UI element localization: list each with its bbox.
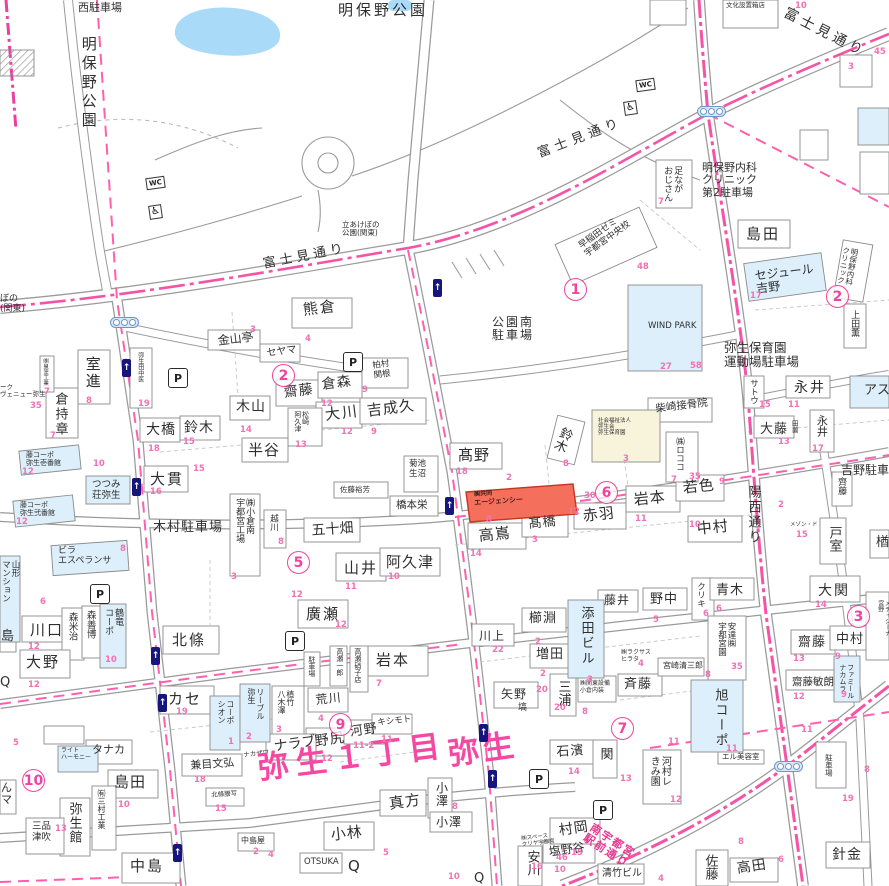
map-label: 宮崎清三郎 (663, 662, 703, 671)
map-label: 楢 (876, 536, 889, 551)
map-label: 中島屋 (241, 837, 265, 846)
map-label: 陽西通り (745, 485, 760, 545)
map-label: Q (0, 676, 10, 691)
lot-number: 58 (690, 362, 702, 372)
map-label: 大関 (818, 584, 850, 600)
lot-number: 18 (456, 468, 468, 478)
lot-number: 4 (658, 875, 664, 885)
lot-number: 3 (532, 536, 538, 546)
lot-number: 10 (448, 873, 460, 883)
lot-number: 14 (470, 550, 482, 560)
map-label: 佐藤 (702, 854, 717, 880)
map-label: 高瀬硝子店 (353, 648, 361, 683)
parking-icon: P (529, 769, 549, 789)
lot-number: 10 (689, 521, 701, 531)
lot-number: 35 (30, 402, 42, 412)
bus-stop-icon: ↑ (158, 694, 167, 712)
lot-number: 8 (864, 766, 870, 776)
lot-number: 4 (268, 851, 274, 861)
lot-number: 2 (540, 670, 546, 680)
map-label: 富士見通り (262, 242, 348, 273)
map-label: 南宇都宮 駅前通り (581, 822, 638, 871)
map-label: ん マ (1, 782, 12, 807)
map-label: 岩本 (376, 652, 410, 669)
map-label: 齊藤 (836, 477, 846, 495)
map-label: 河村レ きみ園 (648, 756, 670, 786)
map-label: 添田ビル (578, 606, 593, 666)
map-label: 橋本栄 (396, 500, 428, 512)
lot-number: 15 (215, 805, 227, 815)
map-label: 上田薫 (849, 310, 859, 337)
lot-number: 48 (637, 263, 649, 273)
lot-number: 16 (531, 863, 543, 873)
lot-number: 46 (556, 854, 568, 864)
lot-number: 6 (778, 856, 784, 866)
lot-number: 8 (738, 838, 744, 848)
lot-number: 8 (563, 460, 569, 470)
bus-stop-icon: ↑ (433, 279, 442, 297)
lot-number: 13 (55, 825, 67, 835)
toilet-icon: WC (635, 78, 655, 93)
lot-number: 9 (841, 691, 847, 701)
lot-number: 4 (638, 660, 644, 670)
lot-number: 11 (788, 401, 800, 411)
lot-number: 5 (653, 616, 659, 626)
map-label: 島田 (114, 774, 146, 791)
lot-number: 10 (388, 573, 400, 583)
map-label: 明保野公園 (338, 2, 428, 19)
map-label: 荒川 (315, 691, 342, 707)
map-label: 島田 (746, 226, 780, 243)
lot-number: 7 (376, 680, 382, 690)
lot-number: 22 (492, 646, 504, 656)
map-label: 齋藤 (798, 636, 826, 651)
lot-number: 2 (506, 474, 512, 484)
traffic-signal-icon (110, 317, 139, 328)
lot-number: 6 (703, 610, 709, 620)
lot-number: 9 (362, 386, 368, 396)
map-label: ライト ハーモニー (61, 748, 91, 761)
lot-number: 15 (759, 401, 771, 411)
map-label: 明保野公園 (80, 36, 97, 131)
lot-number: 10 (105, 656, 117, 666)
map-label: 関 (597, 747, 612, 760)
map-label: 足なが おじさん (662, 166, 682, 202)
parking-icon: P (285, 631, 305, 651)
map-label: 柏村 関根 (372, 360, 391, 381)
map-label: ㈱小倉南 宇都宮工場 (234, 498, 254, 543)
lot-number: 12 (568, 508, 580, 518)
lot-number: 15 (193, 465, 205, 475)
lot-number: 5 (13, 739, 19, 749)
map-label: 室進 (84, 356, 101, 390)
lot-number: 12 (793, 693, 805, 703)
lot-number: 11-2 (353, 742, 374, 752)
lot-number: 12 (22, 468, 34, 478)
lot-number: 10 (554, 866, 566, 876)
lot-number: 12 (341, 428, 353, 438)
map-label: 菊池 生沼 (409, 460, 426, 479)
map-label: 山形 マンション (0, 560, 19, 603)
lot-number: 11 (635, 515, 647, 525)
lot-number: 45 (874, 48, 886, 58)
lot-number: 7 (44, 388, 50, 398)
map-label: 鈴木 (184, 421, 214, 437)
map-label: 櫛淵 (529, 612, 557, 627)
lot-number: 17 (812, 445, 824, 455)
lot-number: 11 (668, 738, 680, 748)
map-label: 明保野内科 クリニック (835, 246, 858, 286)
map-label: 森米治 (66, 612, 77, 641)
map-label: 吉成久 (366, 397, 416, 420)
map-label: 五十畑 (311, 521, 354, 540)
lot-number: 7 (671, 476, 677, 486)
map-label: 田薗 (790, 420, 797, 433)
map-label: 弥生保育園 運動場駐車場 (724, 341, 799, 369)
lot-number: 4 (305, 335, 311, 345)
map-label: 青木 (716, 584, 744, 599)
map-label: 大野 (26, 654, 60, 671)
lot-number: 10 (118, 801, 130, 811)
wheelchair-icon: ♿ (148, 204, 163, 220)
map-label: 斉藤 (624, 678, 652, 693)
lot-number: 14 (568, 768, 580, 778)
circled-block-number: 2 (826, 285, 849, 308)
lot-number: 8 (86, 397, 92, 407)
lot-number: 14 (815, 601, 827, 611)
map-label: 藤コーポ 弥生壱番館 (26, 452, 61, 468)
map-label: 弥生館 (66, 802, 81, 844)
lot-number: 12 (335, 621, 347, 631)
lot-number: 17 (750, 292, 762, 302)
map-label: 高瀬一郎 (335, 648, 343, 676)
map-label: 熊倉 (302, 298, 338, 319)
map-label: 戸室 (826, 526, 841, 552)
map-label: 駐車場 (824, 754, 832, 777)
lot-number: 6 (716, 605, 722, 615)
map-label: 兼目文弘 (190, 757, 235, 772)
map-label: アス (864, 384, 889, 399)
lot-number: 8 (705, 671, 711, 681)
bus-stop-icon: ↑ (173, 844, 182, 862)
circled-block-number: 5 (287, 551, 310, 574)
map-label: 木山 (236, 400, 266, 416)
map-label: メゾン・ド (790, 522, 818, 528)
map-label: ㈱関東設備 小倉内装 (580, 681, 610, 694)
bus-stop-icon: ↑ (445, 497, 454, 515)
lot-number: 35 (731, 663, 743, 673)
lot-number: 20 (554, 704, 566, 714)
map-label: 半谷 (248, 442, 280, 459)
circled-block-number: 3 (847, 605, 870, 628)
lot-number: 9 (371, 428, 377, 438)
bus-stop-icon: ↑ (488, 770, 497, 788)
lot-number: 9 (719, 478, 725, 488)
map-label: 岩本 (633, 489, 667, 509)
lot-number: 7 (50, 432, 56, 442)
map-label: OTSUKA (304, 858, 339, 868)
map-label: タナカ (92, 744, 125, 756)
lot-number: 20 (536, 686, 548, 696)
map-label: ㈲三村工業 (96, 789, 105, 829)
circled-block-number: 9 (329, 713, 352, 736)
lot-number: 1 (228, 738, 234, 748)
lot-number: 2 (535, 638, 541, 648)
map-labels-layer: 西駐車場明保野公園明保野公園富士見通り文化設置箱店富士見通り富士見通り立あけぼの… (0, 0, 889, 886)
map-label: ビラ エスペランサ (58, 546, 111, 566)
lot-number: 18 (148, 445, 160, 455)
map-label: 植竹 八木澤 (276, 690, 294, 714)
lot-number: 8 (486, 516, 492, 526)
map-label: 北條謄写 (211, 790, 237, 799)
map-label: 藤コーポ 弥生弐番館 (20, 502, 55, 518)
map-label: セジュール 吉野 (754, 263, 816, 297)
map-label: 高田 (736, 858, 768, 878)
map-label: つつみ 荘弥生 (92, 480, 121, 501)
map-label: 木村駐車場 (153, 521, 223, 536)
map-label: 大貫 (150, 471, 184, 488)
lot-number: 13 (295, 441, 307, 451)
map-label: 野中 (650, 593, 678, 608)
map-label: 中島 (130, 858, 164, 875)
lot-number: 12 (321, 400, 333, 410)
lot-number: 2 (246, 733, 252, 743)
map-label: 佐藤裕芳 (340, 486, 370, 494)
map-label: 矢野 (501, 688, 527, 701)
lot-number: 12 (16, 518, 28, 528)
lot-number: 35 (689, 473, 701, 483)
lot-number: 6 (40, 598, 46, 608)
map-label: 公園南 駐車場 (492, 316, 534, 343)
map-label: 安達㈱ 宇都宮園 (716, 622, 735, 656)
circled-block-number: 1 (564, 278, 587, 301)
map-label: 永井 (794, 381, 826, 397)
lot-number: 13 (620, 775, 632, 785)
map-label: 金山亭 (217, 331, 254, 349)
map-label: コーポ シオン (216, 700, 234, 724)
map-label: 立あけぼの 公園(関東) (342, 221, 380, 238)
map-label: クリキ (695, 582, 705, 608)
map-label: 三品 津吹 (32, 822, 51, 843)
bus-stop-icon: ↑ (479, 724, 488, 742)
map-label: 藤井 (604, 594, 630, 607)
parking-icon: P (343, 352, 363, 372)
parking-icon: P (90, 584, 110, 604)
map-label: サトウ (748, 379, 758, 405)
lot-number: 3 (276, 726, 282, 736)
map-label: 大藤 (760, 423, 788, 438)
lot-number: 2 (778, 501, 784, 511)
traffic-signal-icon (774, 761, 803, 772)
map-label: 髙橋 (528, 515, 557, 532)
lot-number: 13 (793, 655, 805, 665)
map-label: カセ (168, 691, 202, 708)
map-label: 越川 (268, 514, 278, 531)
map-label: 高嶌 (478, 525, 512, 545)
map-label: 川上 (479, 630, 505, 643)
lot-number: 19 (176, 708, 188, 718)
map-label: セヤマ (266, 344, 297, 359)
map-label: 小 澤 (436, 782, 448, 809)
lot-number: 9 (835, 653, 841, 663)
toilet-icon: WC (145, 176, 165, 191)
map-label: ㈱ラクサス ヒラタ (621, 650, 651, 663)
map-label: 髙野 (458, 447, 490, 464)
lot-number: 12 (28, 681, 40, 691)
map-label: 川口 (30, 622, 64, 639)
lot-number: 2 (253, 848, 259, 858)
lot-number: 10 (795, 2, 807, 12)
map-label: メティシーナ 宮野 (876, 600, 889, 636)
lot-number: 13 (778, 438, 790, 448)
lot-number: 11 (381, 736, 393, 746)
lot-number: 12 (670, 796, 682, 806)
lot-number: 11 (726, 745, 738, 755)
map-label: 山井 (344, 560, 378, 577)
map-label: 中村 (836, 633, 864, 648)
map-label: 鈴木 (549, 424, 573, 454)
lot-number: 12 (321, 755, 333, 765)
lot-number: 12 (28, 643, 40, 653)
lot-number: 3 (848, 63, 854, 73)
map-label: WIND PARK (648, 322, 696, 332)
lot-number: 16 (150, 488, 162, 498)
lot-number: 8 (582, 708, 588, 718)
map-label: ーク ヴェニュー弥生 (0, 384, 46, 399)
lot-number: 18 (194, 776, 206, 786)
circled-block-number: 7 (611, 717, 634, 740)
lot-number: 7 (658, 198, 664, 208)
map-label: ㈱ロココ (674, 437, 684, 471)
lot-number: 15 (571, 849, 583, 859)
circled-block-number: 10 (22, 769, 45, 792)
lot-number: 10 (93, 460, 105, 470)
parking-icon: P (593, 800, 613, 820)
map-label: 阿久津 (386, 554, 434, 571)
map-label: 大橋 (146, 423, 176, 439)
map-label: 文化設置箱店 (726, 2, 765, 9)
map-label: 石濱 (556, 744, 585, 760)
map-label: 中村 (696, 518, 730, 538)
map-label: 島 (1, 630, 14, 645)
lot-number: 3 (250, 326, 256, 336)
lot-number: 14 (240, 426, 252, 436)
map-canvas[interactable]: 西駐車場明保野公園明保野公園富士見通り文化設置箱店富士見通り富士見通り立あけぼの… (0, 0, 889, 886)
lot-number: 19 (138, 400, 150, 410)
bus-stop-icon: ↑ (151, 647, 160, 665)
map-label: キシモト (377, 715, 412, 728)
map-label: 西駐車場 (78, 2, 122, 14)
map-label: Q (348, 858, 360, 875)
map-label: 松崎 阿久津 (293, 411, 309, 432)
map-label: 富士見通り (781, 6, 868, 61)
map-label: 森善博 (84, 610, 95, 639)
map-label: 吉野駐車場 (841, 464, 889, 477)
map-label: 増田 (536, 648, 564, 663)
map-label: 赤羽 (582, 505, 616, 525)
map-label: リーブル 弥生 (246, 688, 264, 720)
map-label: Q (474, 872, 484, 886)
map-label: 永井 (815, 415, 827, 437)
map-label: 駐車場 (307, 656, 315, 677)
map-label: 明保野内科 クリニック 第2駐車場 (702, 162, 757, 199)
lot-number: 19 (842, 795, 854, 805)
map-label: 小澤 (436, 816, 462, 829)
map-label: 倉森 (321, 374, 353, 393)
lot-number: 3 (587, 676, 593, 686)
map-label: エージェンシー (474, 497, 523, 508)
lot-number: 12 (291, 591, 303, 601)
lot-number: 11 (345, 583, 357, 593)
map-label: ㈱泉塗工業 (42, 358, 48, 386)
map-label: 真方 (388, 792, 422, 813)
map-label: 鶴竜 コーポ (103, 608, 123, 635)
lot-number: 3 (231, 573, 237, 583)
circled-block-number: 2 (272, 364, 295, 387)
map-label: 富士見通り (536, 116, 625, 162)
wheelchair-icon: ♿ (623, 100, 638, 116)
traffic-signal-icon (697, 106, 726, 117)
parking-icon: P (168, 368, 188, 388)
lot-number: 15 (796, 531, 808, 541)
map-label: 社会福祉法人 弥生会 弥生保育園 (598, 418, 631, 436)
lot-number: 3 (623, 455, 629, 465)
circled-block-number: 6 (595, 481, 618, 504)
map-label: 針金 (832, 848, 862, 864)
map-label: 柴崎接骨院 (655, 398, 709, 416)
lot-number: 15 (183, 438, 195, 448)
lot-number: 27 (660, 363, 672, 373)
bus-stop-icon: ↑ (132, 478, 141, 496)
bus-stop-icon: ↑ (122, 359, 131, 377)
map-label: 北條 (172, 632, 206, 649)
map-label: ぼの (関東) (0, 294, 25, 314)
map-label: 齋藤敏朗 (792, 677, 834, 689)
lot-number: 8 (120, 545, 126, 555)
lot-number: 4 (318, 715, 324, 725)
lot-number: 5 (383, 849, 389, 859)
map-label: 旭コーポ (712, 688, 727, 748)
map-label: 弥生田中医 (136, 352, 143, 382)
map-label: 小林 (330, 824, 364, 844)
map-label: 塙 (518, 703, 527, 713)
lot-number: 8 (452, 803, 458, 813)
lot-number: 8 (278, 538, 284, 548)
map-label: 早稲田ゼミ 宇都宮中央校 (577, 211, 633, 259)
lot-number: 11 (801, 726, 813, 736)
